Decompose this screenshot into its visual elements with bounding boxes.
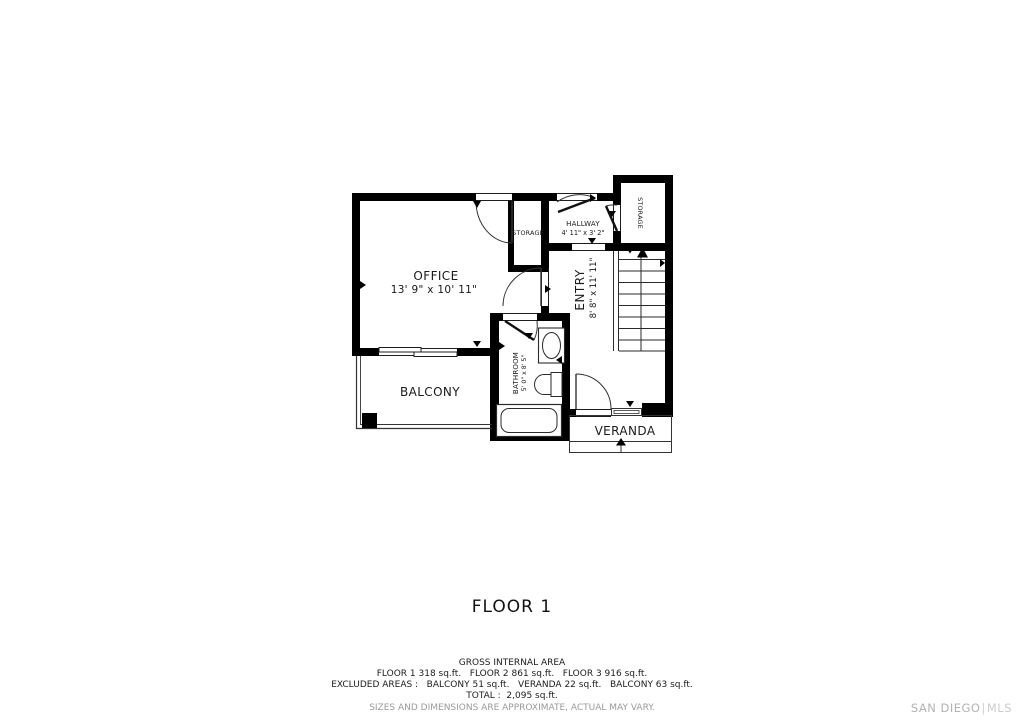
bathroom-label: BATHROOM: [512, 352, 520, 394]
bathroom-dims: 5' 0" x 8' 5": [521, 355, 528, 392]
floor-plan-page: OFFICE 13' 9" x 10' 11" BALCONY VERANDA …: [0, 0, 1024, 724]
door-arc: [606, 205, 617, 206]
bathroom-fixtures: [497, 328, 565, 437]
balcony-post: [362, 413, 377, 428]
opening-marker: [360, 281, 366, 289]
floor-title: FLOOR 1: [0, 597, 1024, 617]
hallway-dims: 4' 11" x 3' 2": [562, 229, 605, 237]
toilet: [535, 373, 563, 397]
opening-marker: [626, 401, 634, 407]
threshold-step: [612, 409, 642, 416]
stair-treads: [619, 260, 665, 352]
opening-marker: [499, 342, 505, 350]
stairs: [614, 248, 666, 352]
stair-stringers: [614, 251, 642, 351]
office-label: OFFICE: [413, 269, 458, 283]
door-office-top: [476, 201, 512, 243]
hallway-label: HALLWAY: [566, 220, 600, 228]
gross-internal-area-heading: GROSS INTERNAL AREA: [0, 658, 1024, 669]
door-arc: [503, 268, 541, 306]
door-leaf: [606, 206, 617, 231]
storage-right-label: STORAGE: [636, 197, 644, 229]
area-summary: GROSS INTERNAL AREA FLOOR 1 318 sq.ft. F…: [0, 658, 1024, 714]
opening-marker: [473, 201, 481, 208]
watermark-suffix: MLS: [987, 701, 1012, 715]
entry-dims: 8' 8" x 11' 11": [589, 258, 599, 319]
sliding-panel: [414, 352, 457, 357]
opening-marker: [473, 341, 481, 347]
sliding-panel: [379, 348, 421, 353]
bathtub: [497, 405, 562, 437]
door-arc: [476, 201, 512, 243]
door-office-entry: [503, 268, 541, 306]
veranda-label: VERANDA: [595, 424, 656, 438]
floor-areas-line: FLOOR 1 318 sq.ft. FLOOR 2 861 sq.ft. FL…: [0, 669, 1024, 680]
balcony-label: BALCONY: [400, 385, 460, 399]
door-hallway-top: [557, 194, 596, 212]
opening-marker: [660, 259, 665, 267]
door-bathroom: [505, 321, 537, 340]
storage-closet-label: STORAGE: [512, 229, 544, 237]
disclaimer-text: SIZES AND DIMENSIONS ARE APPROXIMATE, AC…: [0, 703, 1024, 714]
watermark-brand: SAN DIEGO: [911, 701, 981, 715]
total-area-line: TOTAL : 2,095 sq.ft.: [0, 691, 1024, 702]
office-dims: 13' 9" x 10' 11": [391, 284, 478, 296]
entry-label: ENTRY: [573, 269, 587, 310]
door-arc: [534, 321, 537, 340]
door-arc: [576, 374, 611, 409]
door-veranda: [576, 374, 611, 409]
mls-watermark: SAN DIEGO|MLS: [911, 701, 1012, 715]
excluded-areas-line: EXCLUDED AREAS : BALCONY 51 sq.ft. VERAN…: [0, 680, 1024, 691]
door-storage-right: [606, 205, 617, 231]
